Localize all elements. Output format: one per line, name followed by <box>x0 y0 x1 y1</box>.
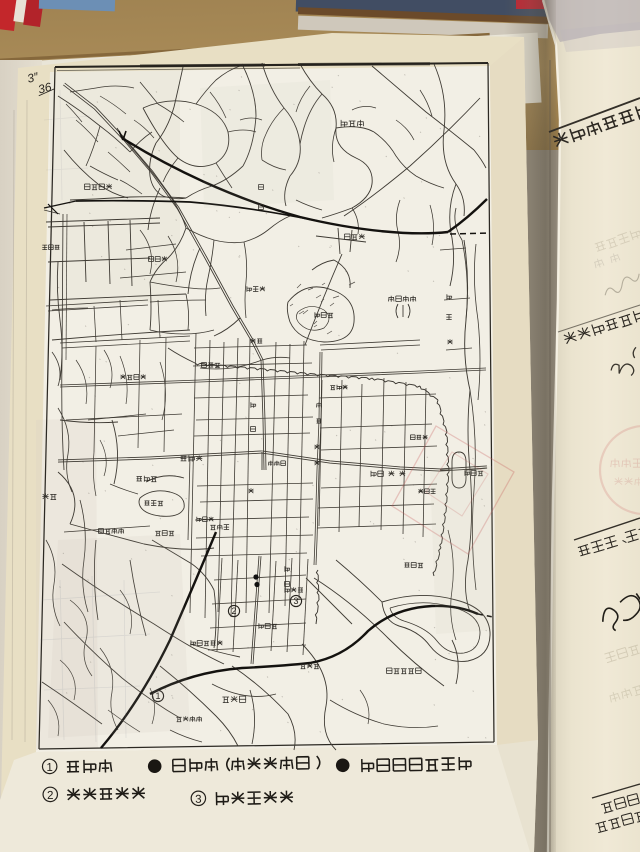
svg-text:2: 2 <box>47 790 54 802</box>
svg-text:1: 1 <box>46 762 53 774</box>
svg-text:3: 3 <box>293 596 298 606</box>
svg-text:2: 2 <box>231 606 236 616</box>
svg-text:3: 3 <box>195 794 202 806</box>
svg-text:36: 36 <box>37 80 54 97</box>
